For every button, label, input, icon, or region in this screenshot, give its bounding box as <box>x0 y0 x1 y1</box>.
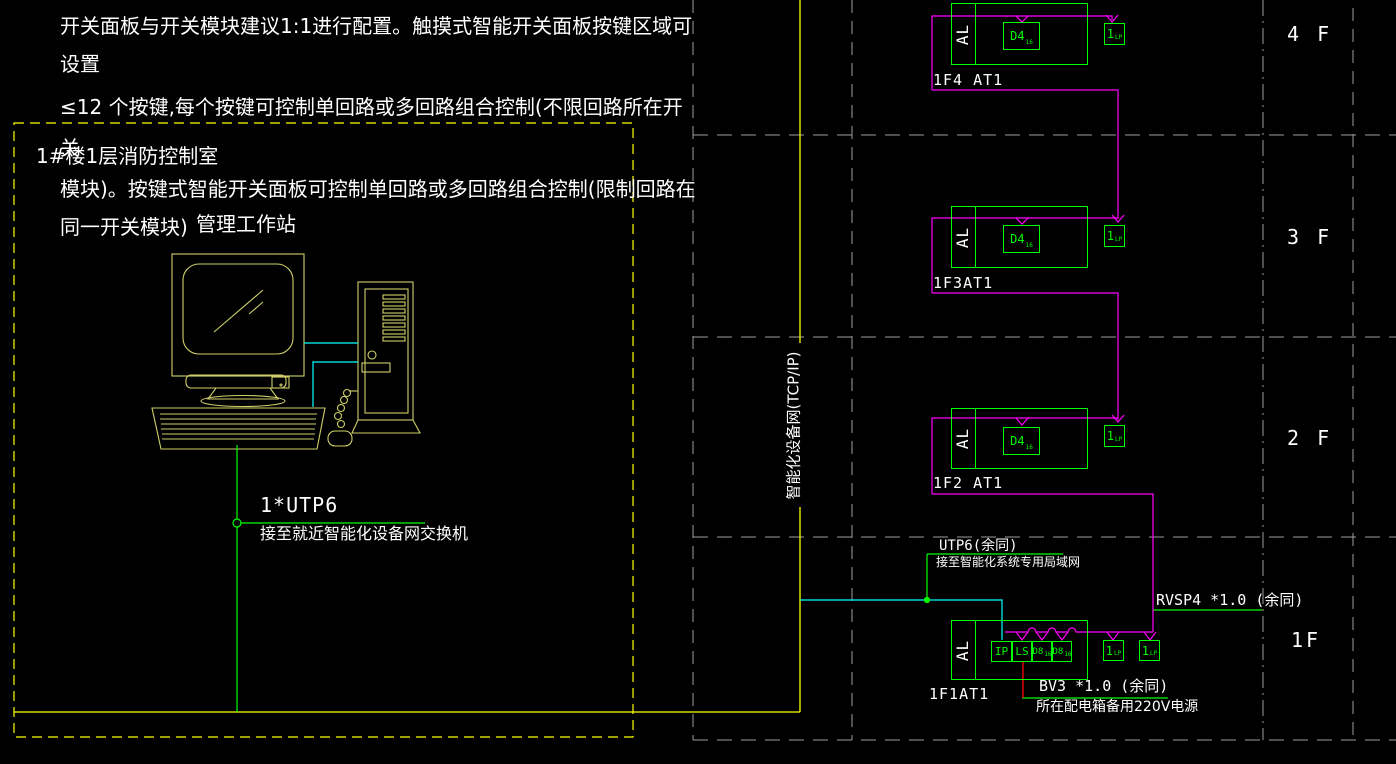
al-panel-4f-tag: AL <box>951 3 975 65</box>
panel-label-3f: 1F3AT1 <box>933 275 993 292</box>
al-panel-divider <box>975 207 976 267</box>
panel-label-1f: 1F1AT1 <box>929 686 989 703</box>
utp6-riser-label: UTP6(余同) <box>939 539 1018 554</box>
al-panel-divider <box>975 4 976 64</box>
note-line-5: 模块)。按键式智能开关面板可控制单回路或多回路组合控制(限制回路在 <box>60 178 696 200</box>
d8-module-1f-a: D816 <box>1032 641 1052 662</box>
riser-label: 智能化设备网(TCP/IP) <box>770 343 816 507</box>
al-panel-divider <box>975 621 976 679</box>
rvsp4-cable-label: RVSP4 *1.0 (余同) <box>1156 592 1303 609</box>
switch-panel-2f: 1LP <box>1104 425 1125 447</box>
utp6-riser-note: 接至智能化系统专用局域网 <box>936 556 1080 569</box>
floor-label-2f: 2 F <box>1287 427 1332 449</box>
al-panel-2f-tag: AL <box>951 408 975 469</box>
cad-canvas: 开关面板与开关模块建议1:1进行配置。触摸式智能开关面板按键区域可 设置 ≤12… <box>0 0 1396 764</box>
switch-panel-3f: 1LP <box>1104 225 1125 247</box>
al-panel-3f-tag: AL <box>951 206 975 268</box>
utp-green-lines <box>233 445 1262 712</box>
switch-panel-1f-a: 1LP <box>1103 640 1124 661</box>
control-room-label: 1#楼1层消防控制室 <box>36 145 218 167</box>
utp6-cable-label: 1*UTP6 <box>260 494 338 516</box>
floor-label-3f: 3 F <box>1287 226 1332 248</box>
panel-label-4f: 1F4 AT1 <box>933 72 1003 89</box>
floor-label-1f: 1F <box>1291 629 1321 651</box>
note-line-1: 开关面板与开关模块建议1:1进行配置。触摸式智能开关面板按键区域可 <box>60 15 692 37</box>
lan-cyan-lines <box>304 343 1002 640</box>
ip-module-1f: IP <box>991 641 1012 662</box>
dimmer-module-4f: D416 <box>1003 22 1040 50</box>
ls-module-1f: LS <box>1012 641 1032 662</box>
al-panel-divider <box>975 409 976 468</box>
note-line-6: 同一开关模块) <box>60 216 188 238</box>
floor-label-4f: 4 F <box>1287 23 1332 45</box>
d8-module-1f-b: D816 <box>1052 641 1072 662</box>
panel-label-2f: 1F2 AT1 <box>933 475 1003 492</box>
switch-panel-4f: 1LP <box>1104 23 1125 45</box>
bv3-cable-note: 所在配电箱备用220V电源 <box>1036 700 1198 715</box>
switch-panel-1f-b: 1LP <box>1139 640 1160 661</box>
note-line-3: ≤12 个按键,每个按键可控制单回路或多回路组合控制(不限回路所在开 <box>60 96 683 118</box>
workstation-label: 管理工作站 <box>196 213 296 235</box>
al-panel-1f-tag: AL <box>951 620 975 680</box>
bv3-cable-label: BV3 *1.0 (余同) <box>1039 678 1168 695</box>
workstation-computer-icon <box>152 254 420 449</box>
dimmer-module-3f: D416 <box>1003 225 1040 253</box>
note-line-2: 设置 <box>60 53 100 75</box>
utp6-cable-note: 接至就近智能化设备网交换机 <box>260 525 468 543</box>
dimmer-module-2f: D416 <box>1003 427 1040 455</box>
